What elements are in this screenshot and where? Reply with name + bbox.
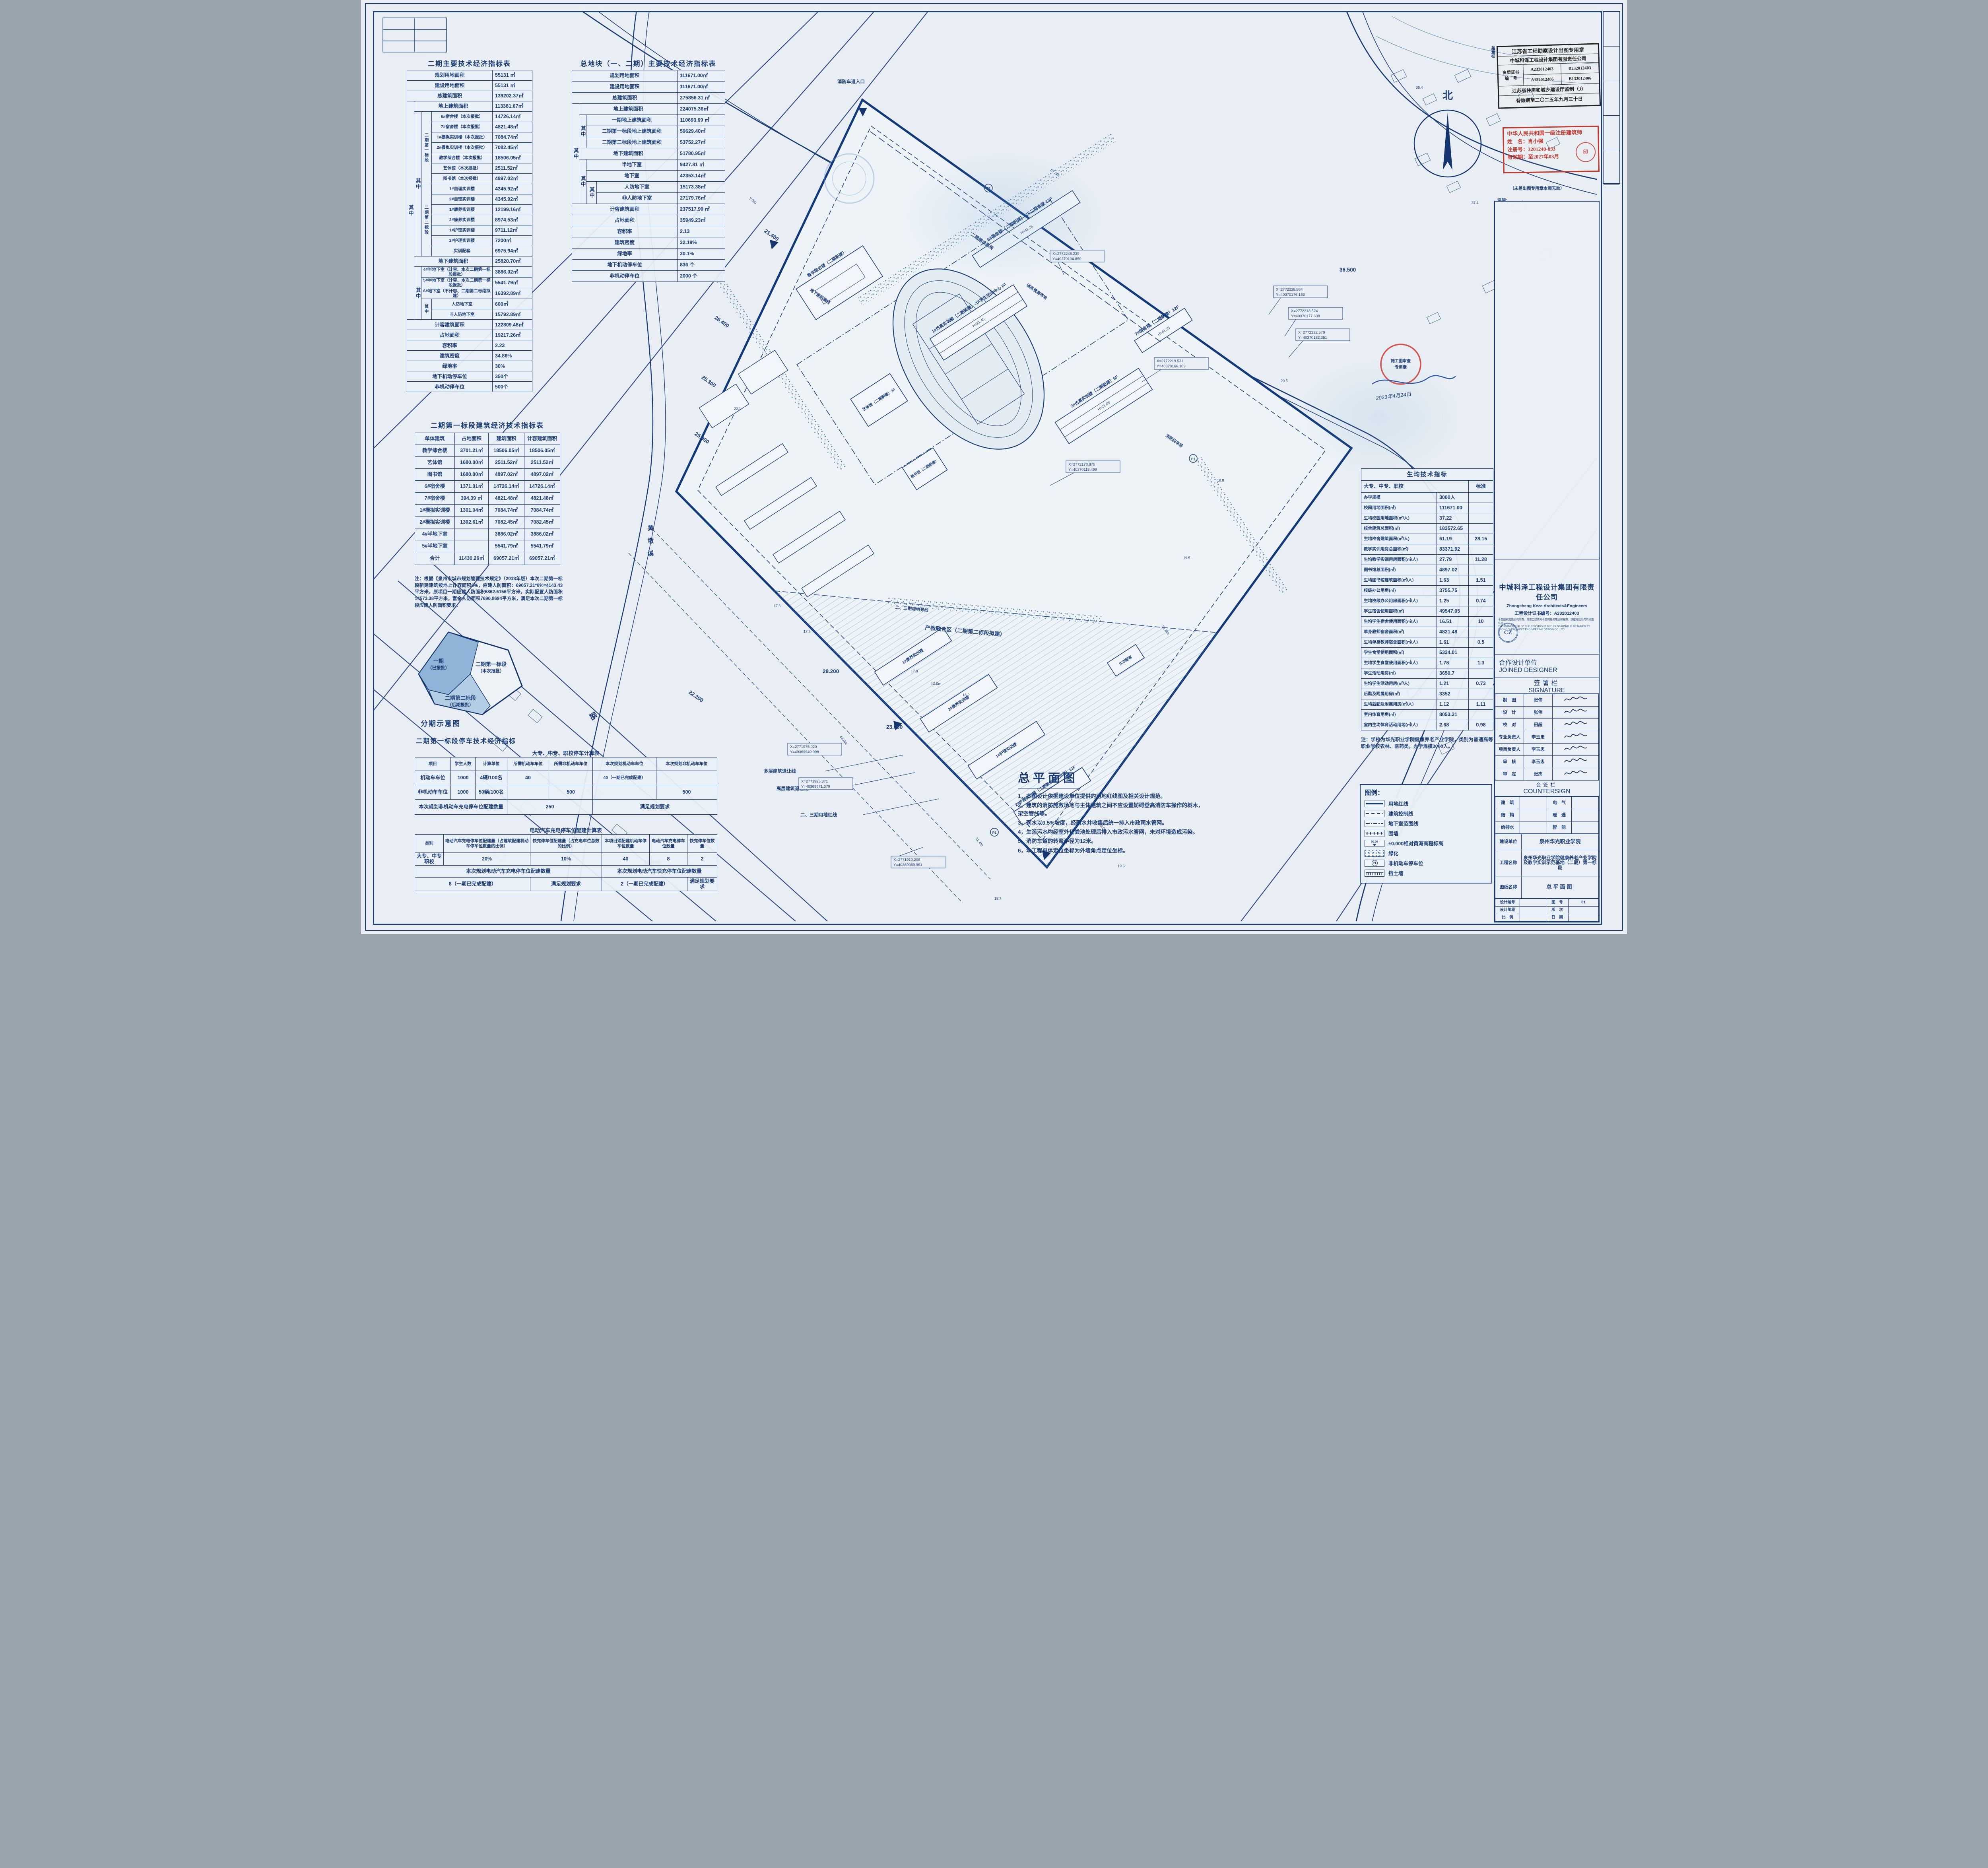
legend-item: 挡土墙 bbox=[1365, 868, 1487, 878]
table-row: 生均单身教师宿舍面积(㎡/人)1.610.5 bbox=[1361, 637, 1493, 648]
level-value: 36.500 bbox=[1340, 267, 1356, 273]
legend-item: 围墙 bbox=[1365, 828, 1487, 838]
north-arrow: 北 bbox=[1414, 89, 1481, 177]
note-item: 5，消防车道的转弯半径为12米。 bbox=[1018, 837, 1205, 845]
parking-b-title: 电动汽车充电停车位配建计算表 bbox=[415, 826, 717, 834]
t3-header-cell: 占地面积 bbox=[455, 433, 489, 445]
hq-role: 给排水 bbox=[1495, 821, 1520, 834]
river-name-char: 墩 bbox=[648, 537, 654, 544]
table-row: 学生宿舍使用面积(㎡)49547.05 bbox=[1361, 606, 1493, 617]
note-item: 1，本图设计依据建设单位提供的用地红线图及相关设计规范。 bbox=[1018, 792, 1205, 800]
num-label: 设计阶段 bbox=[1495, 907, 1520, 914]
legend-swatch bbox=[1365, 800, 1384, 807]
note-item: 6，本工程单体定位坐标为外墙角点定位坐标。 bbox=[1018, 847, 1205, 855]
table-row: 校舍建筑总面积(㎡)183572.65 bbox=[1361, 524, 1493, 534]
level-value: 25.300 bbox=[700, 374, 717, 388]
signature-row: 审 定 张杰 bbox=[1495, 768, 1599, 781]
table-row: 生均后勤及附属用房(㎡/人)1.121.11 bbox=[1361, 699, 1493, 710]
seal-char: 印 bbox=[1583, 148, 1588, 156]
level-value: 21.400 bbox=[763, 228, 780, 242]
header-cell: 本项目须配建机动车停车位数量 bbox=[602, 835, 650, 853]
p1-marker-text: P1 bbox=[992, 831, 997, 835]
header-cell: 项目 bbox=[415, 757, 451, 771]
sig-name: 李玉忠 bbox=[1524, 731, 1553, 744]
drawing-sheet: 黄 墩 溪 路 bbox=[361, 0, 1627, 934]
spot-value: 19.6 bbox=[1118, 864, 1125, 868]
header-cell: 学生人数 bbox=[451, 757, 476, 771]
num-label: 图 号 bbox=[1546, 899, 1569, 907]
num-value bbox=[1520, 907, 1546, 914]
legend-label: 用地红线 bbox=[1388, 800, 1408, 807]
header-cell: 快充停车位数量 bbox=[687, 835, 717, 853]
handwritten-date: 2023年4月24日 bbox=[1375, 391, 1412, 401]
spot-value: 17.7 bbox=[804, 629, 811, 633]
signature-row: 制 图 张伟 bbox=[1495, 694, 1599, 707]
table-row: 4#半地下室3886.02㎡3886.02㎡ bbox=[415, 528, 560, 540]
legend-swatch: P1 bbox=[1365, 860, 1384, 867]
legend-swatch: 50.00 bbox=[1365, 840, 1384, 847]
sig-role: 制 图 bbox=[1495, 694, 1524, 707]
countersign-row: 建 筑 电 气 bbox=[1495, 797, 1599, 809]
coord-x: X=2772213.524 bbox=[1291, 309, 1318, 313]
per-student-note: 注：学校为华光职业学院健康养老产业学院，类别为普通高等职业学校农林、医药类，办学… bbox=[1361, 736, 1493, 750]
header-cell: 快充停车位配建量（占充电车位总数的比例） bbox=[530, 835, 602, 853]
coord-y: Y=40370182.351 bbox=[1298, 336, 1327, 340]
legend-label: 挡土墙 bbox=[1388, 869, 1404, 877]
countersign-table: 建 筑 电 气 结 构 暖 通 给排水 智 能 bbox=[1495, 796, 1599, 834]
coord-x: X=2772222.570 bbox=[1298, 330, 1325, 335]
table-row: 生均学生活动用房(㎡/人)1.210.73 bbox=[1361, 679, 1493, 689]
river-name-char: 黄 bbox=[648, 524, 654, 532]
review-stamp-text: 专用章 bbox=[1395, 365, 1407, 370]
phasing-zone3-label: 二期第二标段 bbox=[445, 695, 476, 701]
num-label: 日 期 bbox=[1546, 914, 1569, 922]
legend: 图例： 用地红线 建筑控制线 地下室范围线 bbox=[1360, 784, 1492, 884]
road-char: 路 bbox=[587, 711, 599, 722]
sig-name: 田超 bbox=[1524, 719, 1553, 731]
note-item: 2，建筑的消防施救场地与主体建筑之间不应设置妨碍登高消防车操作的树木，架空管线等… bbox=[1018, 802, 1205, 818]
header-cell: 计算单位 bbox=[476, 757, 507, 771]
note-item: 4，生活污水均经室外化粪池处理后排入市政污水管网，未对环境造成污染。 bbox=[1018, 828, 1205, 836]
table-row: 生均学生宿舍使用面积(㎡/人)16.5110 bbox=[1361, 617, 1493, 627]
table-row: 室内生均体育活动用地(㎡/人)2.680.98 bbox=[1361, 720, 1493, 730]
coord-y: Y=40370104.850 bbox=[1052, 257, 1081, 261]
review-stamp-text: 施工图审查 bbox=[1391, 358, 1411, 363]
t3-header-cell: 计容建筑面积 bbox=[524, 433, 560, 445]
t3-body: 教学综合楼3701.21㎡18506.05㎡18506.05㎡ 艺体馆1680.… bbox=[415, 445, 560, 565]
review-stamp: 施工图审查 专用章 2023年4月24日 bbox=[1372, 344, 1456, 401]
corner-table bbox=[383, 18, 447, 52]
num-value bbox=[1520, 914, 1546, 922]
legend-item: 建筑控制线 bbox=[1365, 808, 1487, 818]
header-cell: 所需机动车车位 bbox=[507, 757, 549, 771]
table-row: 办学规模3000人 bbox=[1361, 493, 1493, 503]
river-name-char: 溪 bbox=[648, 550, 654, 557]
firm-cert: 工程设计证书编号：A232012403 bbox=[1514, 610, 1579, 616]
coord-y: Y=40370166.109 bbox=[1157, 364, 1186, 369]
spot-value: 17.6 bbox=[774, 604, 781, 608]
phasing-zone1-sub: （已报批） bbox=[428, 665, 450, 670]
table-row: 图书馆总面积(㎡)4897.02 bbox=[1361, 565, 1493, 575]
header-cell: 所需非机动车车位 bbox=[549, 757, 593, 771]
num-value bbox=[1569, 914, 1599, 922]
binding-strip bbox=[1603, 11, 1620, 184]
countersign-row: 给排水 智 能 bbox=[1495, 821, 1599, 834]
number-row: 设计阶段 版 次 bbox=[1495, 907, 1599, 914]
project-label: 工程名称 bbox=[1495, 850, 1522, 876]
sign-label: 签署栏 bbox=[1534, 678, 1560, 687]
joined-label-en: JOINED DESIGNER bbox=[1499, 667, 1595, 674]
number-row: 比 例 日 期 bbox=[1495, 914, 1599, 922]
signature-bar-header: 签署栏 SIGNATURE bbox=[1495, 678, 1599, 694]
t3-header-cell: 单体建筑 bbox=[415, 433, 455, 445]
joined-designer-cell: 合作设计单位 JOINED DESIGNER bbox=[1495, 655, 1599, 678]
coord-y: Y=40369940.998 bbox=[790, 750, 819, 754]
legend-item: 50.00 ±0.000相对黄海高程标高 bbox=[1365, 838, 1487, 848]
p1-marker-text: P1 bbox=[986, 186, 991, 190]
hq-label-en: COUNTERSIGN bbox=[1523, 788, 1570, 795]
t3-header-row: 单体建筑占地面积建筑面积计容建筑面积 bbox=[415, 433, 560, 445]
main-title: 总平面图 bbox=[1018, 768, 1078, 788]
coord-y: Y=40369971.379 bbox=[801, 784, 830, 789]
table-row: 2#模拟实训楼1302.61㎡7082.45㎡7082.45㎡ bbox=[415, 517, 560, 528]
signature-row: 设 计 张伟 bbox=[1495, 707, 1599, 719]
legend-item: 用地红线 bbox=[1365, 798, 1487, 808]
legend-item: P1 非机动车停车位 bbox=[1365, 858, 1487, 868]
institute-seal-stamp: 江苏省工程勘察设计出图专用章 中城科泽工程设计集团有限责任公司 资质证书 编 号… bbox=[1497, 43, 1601, 109]
cert-number: B132012406 bbox=[1561, 73, 1599, 84]
header-cell: 本次规划非机动车车位 bbox=[656, 757, 717, 771]
signature-table: 制 图 张伟 设 计 张伟 校 对 田超 专业负责人 李玉忠 项目负责人 bbox=[1495, 694, 1599, 781]
table-row: 图书馆1680.00㎡4897.02㎡4897.02㎡ bbox=[415, 469, 560, 481]
cert-number: A232012403 bbox=[1523, 64, 1561, 75]
architect-stamp: 中华人民共和国一级注册建筑师 姓 名：肖小强 注册号：3201240-033 有… bbox=[1503, 126, 1600, 173]
level-value: 26.400 bbox=[713, 315, 730, 329]
coord-x: X=2771925.371 bbox=[801, 779, 828, 784]
sig-name: 李玉忠 bbox=[1524, 756, 1553, 768]
spot-value: 37.4 bbox=[1472, 201, 1479, 205]
table-row: 单身教师宿舍面积(㎡)4821.48 bbox=[1361, 627, 1493, 637]
spot-value: 20.5 bbox=[1281, 379, 1288, 383]
table-row: 校级办公用房(㎡)3755.75 bbox=[1361, 586, 1493, 596]
design-firm-block: 中城科泽工程设计集团有限责任公司 Zhongcheng Keze Archite… bbox=[1495, 559, 1599, 655]
table-row: 室内体育用房(㎡)8053.31 bbox=[1361, 710, 1493, 720]
num-value bbox=[1569, 907, 1599, 914]
per-student-title: 生均技术指标 bbox=[1361, 469, 1493, 481]
client-name: 泉州华光职业学院 bbox=[1522, 834, 1599, 850]
legend-swatch bbox=[1365, 850, 1384, 857]
phasing-zone2-label: 二期第一标段 bbox=[476, 661, 507, 667]
countersign-header: 会签栏 COUNTERSIGN bbox=[1495, 781, 1599, 796]
signature-row: 校 对 田超 bbox=[1495, 719, 1599, 731]
phasing-zone3-sub: （后期报批） bbox=[447, 702, 474, 707]
dim-value: 11.4m bbox=[975, 837, 984, 847]
legend-title: 图例： bbox=[1365, 787, 1487, 797]
table-row: 教学实训用房总面积(㎡)83371.92 bbox=[1361, 544, 1493, 555]
t3-title: 二期第一标段建筑经济技术指标表 bbox=[415, 420, 560, 430]
header-cell: 类别 bbox=[415, 835, 444, 853]
north-label: 北 bbox=[1442, 89, 1453, 101]
parking-b-header: 类别电动汽车充电停车位配建量（占建筑配建机动车停车位数量的比例）快充停车位配建量… bbox=[415, 835, 717, 853]
note-head: 注： bbox=[1361, 737, 1371, 742]
legend-label: 围墙 bbox=[1388, 829, 1398, 837]
per-student-body: 办学规模3000人 校园用地面积(㎡)111671.00 生均校园用地面积(㎡/… bbox=[1361, 493, 1493, 730]
t3-table: 单体建筑占地面积建筑面积计容建筑面积 教学综合楼3701.21㎡18506.05… bbox=[415, 433, 560, 565]
num-label: 比 例 bbox=[1495, 914, 1520, 922]
coord-y: Y=40370118.499 bbox=[1068, 468, 1097, 472]
drawing-label: 图纸名称 bbox=[1495, 876, 1522, 899]
header-cell: 电动汽车充电停车位数量 bbox=[650, 835, 687, 853]
num-label: 设计编号 bbox=[1495, 899, 1520, 907]
sig-role: 校 对 bbox=[1495, 719, 1524, 731]
hq-role: 智 能 bbox=[1547, 821, 1572, 834]
drawing-name: 总平面图 bbox=[1522, 876, 1599, 899]
project-name: 泉州华光职业学院健康养老产业学院及教学实训示范基地（二期）第一标段 bbox=[1522, 850, 1599, 876]
parking-a-table: 项目学生人数计算单位所需机动车车位所需非机动车车位本次规划机动车车位本次规划非机… bbox=[415, 757, 717, 815]
table-row: 生均教学实训用房面积(㎡/人)27.7911.28 bbox=[1361, 555, 1493, 565]
t2-title: 总地块（一、二期）主要技术经济指标表 bbox=[572, 58, 725, 68]
table-row: 非机动车车位100050辆/100名500500 bbox=[415, 785, 717, 800]
table-row: 教学综合楼3701.21㎡18506.05㎡18506.05㎡ bbox=[415, 445, 560, 457]
table-row: 艺体馆1680.00㎡2511.52㎡2511.52㎡ bbox=[415, 457, 560, 469]
hq-role: 结 构 bbox=[1495, 809, 1520, 821]
legend-item: 绿化 bbox=[1365, 848, 1487, 858]
header-cell: 电动汽车充电停车位配建量（占建筑配建机动车停车位数量的比例） bbox=[444, 835, 530, 853]
number-table: 设计编号 图 号 01 设计阶段 版 次 比 例 日 期 bbox=[1495, 899, 1599, 922]
table-row: 机动车车位10004辆/100名4040（一期已完成配建） bbox=[415, 771, 717, 785]
hq-role: 电 气 bbox=[1547, 797, 1572, 809]
countersign-row: 结 构 暖 通 bbox=[1495, 809, 1599, 821]
sign-label-en: SIGNATURE bbox=[1528, 687, 1565, 694]
note-item: 3，雨水以0.5%坡度，经雨水井收集后统一排入市政雨水管网。 bbox=[1018, 819, 1205, 827]
note-body: 根据《泉州市城市规划管理技术规定》（2018年版）本次二期第一标段新建建筑按地上… bbox=[415, 577, 563, 608]
legend-label: 地下室范围线 bbox=[1388, 819, 1418, 827]
hq-role: 暖 通 bbox=[1547, 809, 1572, 821]
legend-label: 非机动车停车位 bbox=[1388, 859, 1423, 867]
legend-swatch bbox=[1365, 820, 1384, 827]
sig-role: 项目负责人 bbox=[1495, 744, 1524, 756]
sig-signature bbox=[1553, 768, 1599, 781]
spot-value: 18.8 bbox=[1217, 478, 1224, 482]
note-body: 学校为华光职业学院健康养老产业学院，类别为普通高等职业学校农林、医药类，办学规模… bbox=[1361, 737, 1493, 749]
notes-list: 1，本图设计依据建设单位提供的用地红线图及相关设计规范。2，建筑的消防施救场地与… bbox=[1018, 792, 1205, 855]
stamp-line: 中华人民共和国一级注册建筑师 bbox=[1507, 128, 1594, 138]
parking-b-table: 类别电动汽车充电停车位配建量（占建筑配建机动车停车位数量的比例）快充停车位配建量… bbox=[415, 834, 717, 891]
legend-label: 绿化 bbox=[1388, 849, 1398, 857]
redline-label: 二、三期用地红线 bbox=[800, 812, 837, 817]
sig-name: 张伟 bbox=[1524, 707, 1553, 719]
coord-x: X=2771910.208 bbox=[893, 858, 920, 862]
sig-role: 设 计 bbox=[1495, 707, 1524, 719]
legend-label: 建筑控制线 bbox=[1388, 810, 1413, 817]
coord-y: Y=40370177.638 bbox=[1291, 314, 1320, 318]
signature-row: 项目负责人 李玉忠 bbox=[1495, 744, 1599, 756]
signature-row: 审 核 李玉忠 bbox=[1495, 756, 1599, 768]
sig-name: 张杰 bbox=[1524, 768, 1553, 781]
stamp-column-label: 盖章栏 bbox=[1489, 46, 1495, 58]
cert-number: A132012406 bbox=[1524, 74, 1561, 85]
sig-role: 审 定 bbox=[1495, 768, 1524, 781]
sig-role: 审 核 bbox=[1495, 756, 1524, 768]
t3-note: 注：根据《泉州市城市规划管理技术规定》（2018年版）本次二期第一标段新建建筑按… bbox=[415, 576, 563, 609]
note-head: 注： bbox=[415, 577, 424, 581]
p1-marker-text: P1 bbox=[1191, 457, 1196, 461]
title-block: 中城科泽工程设计集团有限责任公司 Zhongcheng Keze Archite… bbox=[1494, 201, 1600, 922]
legend-label: ±0.000相对黄海高程标高 bbox=[1388, 839, 1443, 847]
firm-name: 中城科泽工程设计集团有限责任公司 bbox=[1498, 582, 1596, 602]
table-row: 学生食堂使用面积(㎡)5334.01 bbox=[1361, 648, 1493, 658]
legend-swatch bbox=[1365, 870, 1384, 877]
parking-a-foot: 本次规划非机动车充电停车位配建数量250满足规划要求 bbox=[415, 800, 717, 815]
num-value bbox=[1520, 899, 1546, 907]
parking-a-header: 项目学生人数计算单位所需机动车车位所需非机动车车位本次规划机动车车位本次规划非机… bbox=[415, 757, 717, 771]
firm-logo: CZ bbox=[1498, 623, 1518, 643]
logo-text: CZ bbox=[1504, 629, 1512, 636]
per-student-table: 生均技术指标 大专、中专、职校标准 办学规模3000人 校园用地面积(㎡)111… bbox=[1361, 468, 1493, 730]
sig-signature bbox=[1553, 731, 1599, 744]
coord-x: X=2772219.531 bbox=[1157, 359, 1183, 363]
t3-total-row: 合计11430.26㎡69057.21㎡69057.21㎡ bbox=[415, 552, 560, 565]
coord-x: X=2772248.239 bbox=[1052, 252, 1079, 256]
coord-y: Y=40370176.183 bbox=[1276, 293, 1305, 297]
stamp-cert-label: 资质证书 bbox=[1503, 69, 1519, 76]
dim-value: 7.0m bbox=[748, 196, 757, 205]
parking-a-title: 大专、中专、职校停车计算表 bbox=[415, 749, 717, 757]
hq-label: 会签栏 bbox=[1536, 781, 1557, 788]
table-row: 校园用地面积(㎡)111671.00 bbox=[1361, 503, 1493, 513]
spot-value: 18.2 bbox=[963, 693, 970, 697]
t3-header-cell: 建筑面积 bbox=[489, 433, 524, 445]
legend-symbol: 50.00 bbox=[1371, 841, 1378, 843]
table-row: 生均校园用地面积(㎡/人)37.22 bbox=[1361, 513, 1493, 524]
client-label: 建设单位 bbox=[1495, 834, 1522, 850]
table-row: 生均图书馆建筑面积(㎡/人)1.631.51 bbox=[1361, 575, 1493, 586]
firm-name-en: Zhongcheng Keze Architects&Engineers bbox=[1507, 604, 1587, 608]
num-value: 01 bbox=[1569, 899, 1599, 907]
level-value: 23.000 bbox=[886, 724, 903, 730]
legend-symbol: P1 bbox=[1372, 860, 1378, 866]
phasing-zone1-label: 一期 bbox=[433, 658, 444, 664]
table-row: 6#宿舍楼1371.01㎡14726.14㎡14726.14㎡ bbox=[415, 481, 560, 493]
table-row: 1#模拟实训楼1301.04㎡7084.74㎡7084.74㎡ bbox=[415, 505, 560, 517]
spot-value: 17.8 bbox=[911, 669, 918, 673]
sig-signature bbox=[1553, 707, 1599, 719]
phasing-zone2-sub: （本次报批） bbox=[478, 668, 504, 674]
project-table: 建设单位泉州华光职业学院 工程名称泉州华光职业学院健康养老产业学院及教学实训示范… bbox=[1495, 834, 1599, 899]
sig-name: 张伟 bbox=[1524, 694, 1553, 707]
t1-title: 二期主要技术经济指标表 bbox=[407, 58, 532, 68]
coord-x: X=2772178.875 bbox=[1068, 462, 1095, 467]
spot-value: 19.5 bbox=[1183, 556, 1190, 560]
coord-y: Y=40369989.961 bbox=[893, 863, 922, 867]
cert-number: B232012403 bbox=[1561, 62, 1599, 74]
stamp-cert-label: 编 号 bbox=[1505, 75, 1517, 82]
level-value: 22.200 bbox=[687, 689, 704, 703]
level-value: 28.200 bbox=[823, 668, 839, 674]
parking-b-foot: 8（一期已完成配建）满足规划要求2（一期已完成配建）满足规划要求 bbox=[415, 877, 717, 891]
legend-item: 地下室范围线 bbox=[1365, 818, 1487, 828]
fire-entry-label: 消防车道入口 bbox=[837, 79, 865, 84]
table-row: 7#宿舍楼394.39 ㎡4821.48㎡4821.48㎡ bbox=[415, 493, 560, 505]
sig-name: 李玉忠 bbox=[1524, 744, 1553, 756]
parking-b-mid: 本次规划电动汽车充电停车位配建数量本次规划电动汽车快充停车位配建数量 bbox=[415, 865, 717, 877]
table-row: 大专、中专职校20%10%4082 bbox=[415, 853, 717, 866]
per-student-subheader: 大专、中专、职校 bbox=[1361, 481, 1469, 493]
legend-swatch bbox=[1365, 830, 1384, 837]
number-row: 设计编号 图 号 01 bbox=[1495, 899, 1599, 907]
parking-a-body: 机动车车位10004辆/100名4040（一期已完成配建） 非机动车车位1000… bbox=[415, 771, 717, 815]
sig-signature bbox=[1553, 719, 1599, 731]
spot-value: 18.7 bbox=[994, 897, 1002, 901]
legend-swatch bbox=[1365, 810, 1384, 817]
sig-signature bbox=[1553, 756, 1599, 768]
t2-table: 规划用地面积111671.00㎡ 建设用地面积111671.00㎡ 总建筑面积2… bbox=[572, 70, 725, 282]
joined-label: 合作设计单位 bbox=[1499, 657, 1595, 667]
signature-row: 专业负责人 李玉忠 bbox=[1495, 731, 1599, 744]
num-label: 版 次 bbox=[1546, 907, 1569, 914]
sig-signature bbox=[1553, 744, 1599, 756]
sig-role: 专业负责人 bbox=[1495, 731, 1524, 744]
table-row: 学生活动用房(㎡)3650.7 bbox=[1361, 668, 1493, 679]
table-row: 后勤及附属用房(㎡)3352 bbox=[1361, 689, 1493, 699]
sig-signature bbox=[1553, 694, 1599, 707]
table-row: 生均校级办公用房面积(㎡/人)1.250.74 bbox=[1361, 596, 1493, 606]
legend-items: 用地红线 建筑控制线 地下室范围线 围墙 50.00 bbox=[1365, 798, 1487, 878]
t1-table: 规划用地面积55131 ㎡ 建设用地面积55131 ㎡ 总建筑面积139202.… bbox=[407, 70, 532, 392]
phasing-caption: 分期示意图 bbox=[421, 718, 500, 728]
phasing-diagram: 一期 （已报批） 二期第一标段 （本次报批） 二期第二标段 （后期报批） bbox=[411, 626, 534, 716]
dim-value: 12.0m bbox=[931, 681, 942, 686]
multi-setback-label: 多层建筑退让线 bbox=[764, 768, 796, 774]
parking-title: 二期第一标段停车技术经济指标 bbox=[416, 736, 583, 745]
spot-value: 22.1 bbox=[734, 407, 741, 411]
coord-x: X=2771975.020 bbox=[790, 745, 817, 749]
table-row: 生均校舍建筑面积(㎡/人)61.1928.15 bbox=[1361, 534, 1493, 544]
spot-value: 36.4 bbox=[1416, 85, 1423, 89]
hq-role: 建 筑 bbox=[1495, 797, 1520, 809]
table-row: 生均学生食堂使用面积(㎡/人)1.781.3 bbox=[1361, 658, 1493, 668]
coord-x: X=2772238.864 bbox=[1276, 287, 1303, 292]
header-cell: 本次规划机动车车位 bbox=[593, 757, 656, 771]
no-seal-invalid-note: （未盖出图专用章本图无效） bbox=[1510, 185, 1602, 191]
general-notes: 总平面图 1，本图设计依据建设单位提供的用地红线图及相关设计规范。2，建筑的消防… bbox=[1018, 768, 1205, 856]
table-row: 5#半地下室5541.79㎡5541.79㎡ bbox=[415, 540, 560, 552]
per-student-standard: 标准 bbox=[1469, 481, 1493, 493]
